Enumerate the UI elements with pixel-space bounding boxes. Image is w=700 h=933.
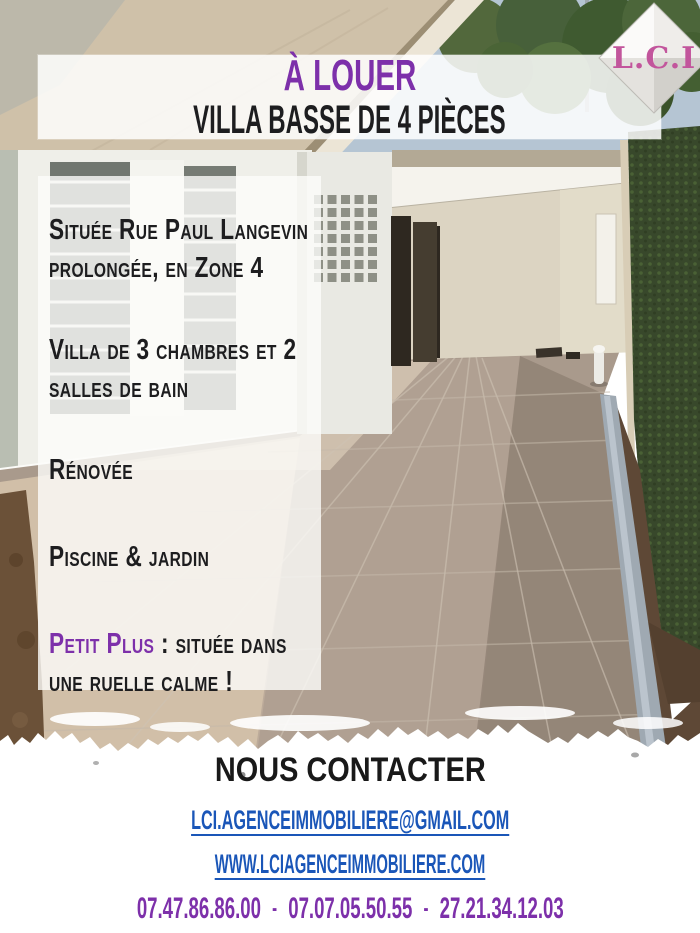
lci-logo-diamond-icon: L.C.I	[598, 2, 700, 114]
header-banner: À LOUER VILLA BASSE DE 4 PIÈCES	[38, 55, 661, 139]
property-details-panel: Située Rue Paul Langevin prolongée, en Z…	[38, 176, 321, 690]
detail-item-location: Située Rue Paul Langevin prolongée, en Z…	[49, 212, 327, 287]
detail-item-bonus: Petit Plus : située dans une ruelle calm…	[49, 626, 327, 701]
lci-logo: L.C.I	[598, 2, 700, 114]
phone-number: 07.47.86.86.00	[137, 892, 261, 925]
detail-item-renovated: Rénovée	[49, 452, 327, 490]
phone-separator: -	[423, 895, 428, 922]
detail-item-pool-garden: Piscine & jardin	[49, 539, 327, 577]
phone-number: 27.21.34.12.03	[439, 892, 563, 925]
phone-number: 07.07.05.50.55	[288, 892, 412, 925]
photo-carport	[391, 150, 640, 387]
website-link[interactable]: WWW.LCIAGENCEIMMOBILIERE.COM	[215, 851, 486, 878]
lci-logo-text: L.C.I	[612, 41, 696, 76]
rental-flyer: L.C.I À LOUER VILLA BASSE DE 4 PIÈCES Si…	[0, 0, 700, 933]
rent-status-title: À LOUER	[283, 54, 416, 98]
contact-heading: NOUS CONTACTER	[0, 753, 700, 787]
contact-section: NOUS CONTACTER LCI.AGENCEIMMOBILIERE@GMA…	[0, 693, 700, 933]
phone-separator: -	[272, 895, 277, 922]
website-row: WWW.LCIAGENCEIMMOBILIERE.COM	[0, 851, 700, 878]
email-link[interactable]: LCI.AGENCEIMMOBILIERE@GMAIL.COM	[191, 807, 509, 834]
email-row: LCI.AGENCEIMMOBILIERE@GMAIL.COM	[0, 807, 700, 834]
phone-numbers: 07.47.86.86.00-07.07.05.50.55-27.21.34.1…	[0, 894, 700, 924]
detail-item-rooms: Villa de 3 chambres et 2 salles de bain	[49, 332, 327, 407]
property-title: VILLA BASSE DE 4 PIÈCES	[193, 99, 506, 141]
